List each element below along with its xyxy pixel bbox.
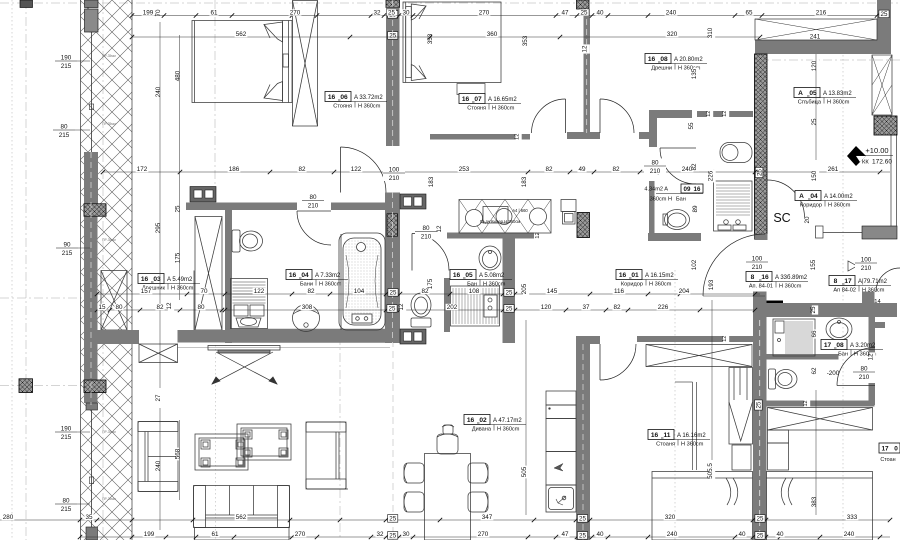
svg-text:40: 40 bbox=[738, 531, 746, 538]
svg-text:204: 204 bbox=[679, 288, 690, 295]
svg-text:A 16.16m2: A 16.16m2 bbox=[677, 433, 706, 439]
svg-text:190: 190 bbox=[61, 55, 72, 62]
svg-text:215: 215 bbox=[61, 63, 72, 70]
svg-text:100: 100 bbox=[389, 167, 400, 174]
svg-text:80: 80 bbox=[62, 498, 70, 505]
svg-text:360: 360 bbox=[487, 31, 498, 38]
svg-text:04: 04 bbox=[810, 193, 818, 200]
svg-text:333: 333 bbox=[847, 514, 858, 521]
svg-text:17: 17 bbox=[824, 342, 832, 349]
svg-text:82: 82 bbox=[307, 288, 315, 295]
svg-text:240: 240 bbox=[155, 86, 162, 97]
svg-text:A 3.20m2: A 3.20m2 bbox=[850, 343, 876, 349]
svg-text:25: 25 bbox=[389, 516, 396, 523]
svg-text:215: 215 bbox=[62, 250, 73, 257]
svg-text:270: 270 bbox=[478, 531, 489, 538]
svg-text:32: 32 bbox=[376, 531, 384, 538]
svg-text:261: 261 bbox=[828, 166, 839, 173]
svg-text:04: 04 bbox=[301, 272, 309, 279]
svg-text:16: 16 bbox=[328, 94, 336, 101]
svg-text:Ап 84-02: Ап 84-02 bbox=[833, 287, 856, 293]
svg-text:353: 353 bbox=[427, 33, 434, 44]
svg-text:A 14.00m2: A 14.00m2 bbox=[824, 194, 853, 200]
svg-text:17: 17 bbox=[881, 446, 889, 453]
svg-text:80: 80 bbox=[197, 304, 205, 311]
svg-text:0: 0 bbox=[894, 446, 898, 453]
svg-text:49: 49 bbox=[578, 166, 586, 173]
svg-text:Коридор: Коридор bbox=[621, 281, 643, 287]
svg-text:25: 25 bbox=[389, 306, 396, 313]
svg-text:06: 06 bbox=[340, 94, 348, 101]
svg-text:240: 240 bbox=[666, 9, 677, 16]
svg-text:210: 210 bbox=[859, 374, 870, 381]
svg-text:07: 07 bbox=[474, 96, 482, 103]
svg-text:210: 210 bbox=[389, 175, 400, 182]
svg-text:353: 353 bbox=[522, 35, 529, 46]
svg-text:104: 104 bbox=[354, 288, 365, 295]
svg-text:15: 15 bbox=[98, 304, 106, 311]
svg-text:Стоан: Стоан bbox=[880, 457, 895, 463]
svg-text:A|79.71m2: A|79.71m2 bbox=[858, 279, 888, 285]
svg-text:568: 568 bbox=[175, 448, 182, 459]
svg-text:Бан: Бан bbox=[676, 197, 686, 203]
svg-text:480: 480 bbox=[175, 70, 182, 81]
svg-text:16: 16 bbox=[619, 272, 627, 279]
svg-text:8: 8 bbox=[834, 278, 838, 285]
svg-text:505: 505 bbox=[521, 466, 528, 477]
svg-text:80: 80 bbox=[115, 304, 123, 311]
svg-text:12: 12 bbox=[166, 302, 173, 310]
svg-text:65: 65 bbox=[745, 9, 753, 16]
svg-text:172: 172 bbox=[137, 166, 148, 173]
svg-text:215: 215 bbox=[61, 506, 72, 513]
svg-text:25: 25 bbox=[757, 516, 764, 523]
svg-text:A 20.80m2: A 20.80m2 bbox=[674, 57, 703, 63]
svg-text:20: 20 bbox=[804, 216, 811, 224]
svg-text:12: 12 bbox=[398, 303, 405, 311]
svg-text:61: 61 bbox=[210, 9, 218, 16]
svg-text:253: 253 bbox=[459, 166, 470, 173]
svg-text:12: 12 bbox=[582, 45, 589, 53]
svg-text:ПР-35мм: ПР-35мм bbox=[102, 54, 115, 58]
svg-text:186: 186 bbox=[229, 166, 240, 173]
svg-text:Съдч Килер Н 360см: Съдч Килер Н 360см bbox=[480, 219, 521, 224]
svg-text:199: 199 bbox=[144, 531, 155, 538]
svg-text:ПР-35мм: ПР-35мм bbox=[102, 122, 115, 126]
svg-text:100: 100 bbox=[752, 256, 763, 263]
svg-text:347: 347 bbox=[482, 514, 493, 521]
svg-text:190: 190 bbox=[61, 426, 72, 433]
svg-text:240: 240 bbox=[844, 531, 855, 538]
svg-text:A 13.83m2: A 13.83m2 bbox=[823, 91, 852, 97]
svg-text:80: 80 bbox=[860, 366, 868, 373]
svg-text:102: 102 bbox=[691, 259, 698, 270]
svg-text:210: 210 bbox=[752, 264, 763, 271]
svg-text:82: 82 bbox=[613, 304, 621, 311]
svg-text:16: 16 bbox=[651, 432, 659, 439]
svg-text:505.5: 505.5 bbox=[707, 463, 714, 479]
svg-text:A 7.33m2: A 7.33m2 bbox=[315, 273, 341, 279]
svg-text:25: 25 bbox=[175, 205, 182, 213]
svg-text:226: 226 bbox=[658, 304, 669, 311]
svg-text:280: 280 bbox=[3, 514, 14, 521]
svg-text:H 360cm: H 360cm bbox=[681, 441, 704, 447]
svg-text:4.34m2 A: 4.34m2 A bbox=[644, 187, 668, 193]
svg-text:H 360cm: H 360cm bbox=[319, 281, 342, 287]
svg-text:16: 16 bbox=[141, 276, 149, 283]
svg-text:A 16.65m2: A 16.65m2 bbox=[488, 97, 517, 103]
svg-text:172.60: 172.60 bbox=[872, 159, 892, 166]
svg-text:H 360cm: H 360cm bbox=[827, 99, 850, 105]
svg-text:25: 25 bbox=[506, 290, 513, 297]
svg-text:40: 40 bbox=[776, 531, 784, 538]
svg-text:202: 202 bbox=[447, 304, 458, 311]
svg-text:Бан: Бан bbox=[467, 281, 477, 287]
svg-text:199: 199 bbox=[143, 9, 154, 16]
svg-text:25: 25 bbox=[388, 9, 396, 16]
svg-text:155: 155 bbox=[810, 259, 817, 270]
svg-text:210: 210 bbox=[308, 202, 319, 209]
svg-text:70: 70 bbox=[200, 288, 208, 295]
svg-text:215: 215 bbox=[61, 434, 72, 441]
svg-text:Стояня: Стояня bbox=[333, 103, 352, 109]
svg-text:215: 215 bbox=[59, 132, 70, 139]
svg-text:H 360cm: H 360cm bbox=[171, 285, 194, 291]
svg-text:145: 145 bbox=[547, 288, 558, 295]
svg-text:66: 66 bbox=[811, 330, 818, 338]
svg-text:122: 122 bbox=[351, 166, 362, 173]
svg-text:270: 270 bbox=[290, 9, 301, 16]
svg-text:16: 16 bbox=[289, 272, 297, 279]
svg-text:H 360cm: H 360cm bbox=[483, 281, 506, 287]
svg-text:16: 16 bbox=[467, 417, 475, 424]
svg-text:А4 | 660: А4 | 660 bbox=[512, 208, 528, 213]
svg-text:02: 02 bbox=[479, 417, 487, 424]
svg-text:61: 61 bbox=[211, 531, 219, 538]
svg-text:A 47.17m2: A 47.17m2 bbox=[493, 418, 522, 424]
svg-text:11: 11 bbox=[664, 432, 671, 439]
svg-text:25: 25 bbox=[757, 533, 764, 540]
svg-text:Ап. 84-01: Ап. 84-01 bbox=[749, 283, 773, 289]
svg-text:216: 216 bbox=[816, 9, 827, 16]
svg-text:150: 150 bbox=[811, 170, 818, 181]
svg-text:62: 62 bbox=[811, 367, 818, 375]
svg-text:12: 12 bbox=[436, 225, 443, 233]
svg-text:210: 210 bbox=[861, 265, 872, 272]
svg-text:320: 320 bbox=[665, 514, 676, 521]
svg-text:70: 70 bbox=[155, 9, 162, 17]
svg-text:308: 308 bbox=[302, 304, 313, 311]
svg-text:210: 210 bbox=[421, 233, 432, 240]
svg-text:25: 25 bbox=[579, 516, 586, 523]
svg-text:ПР-35мм: ПР-35мм bbox=[102, 430, 115, 434]
svg-text:183: 183 bbox=[428, 176, 435, 187]
svg-text:Бани: Бани bbox=[300, 281, 313, 287]
svg-text:241: 241 bbox=[810, 34, 821, 41]
svg-text:320: 320 bbox=[667, 31, 678, 38]
svg-text:120: 120 bbox=[811, 60, 818, 71]
svg-text:30: 30 bbox=[402, 9, 410, 16]
svg-text:Спъбица: Спъбица bbox=[798, 99, 822, 105]
svg-text:A 5.49m2: A 5.49m2 bbox=[167, 277, 193, 283]
svg-text:ПР-35мм: ПР-35мм bbox=[102, 238, 115, 242]
svg-text:25: 25 bbox=[580, 9, 588, 16]
svg-text:Стояня: Стояня bbox=[467, 105, 486, 111]
svg-text:-200: -200 bbox=[827, 370, 840, 377]
svg-text:562: 562 bbox=[236, 31, 247, 38]
svg-text:27: 27 bbox=[155, 394, 162, 402]
svg-text:383: 383 bbox=[811, 496, 818, 507]
svg-text:175: 175 bbox=[175, 252, 182, 263]
svg-text:01: 01 bbox=[631, 272, 639, 279]
svg-text:80: 80 bbox=[309, 194, 317, 201]
svg-text:47: 47 bbox=[561, 531, 569, 538]
svg-text:12: 12 bbox=[515, 134, 521, 140]
svg-text:80: 80 bbox=[651, 160, 659, 167]
svg-text:82: 82 bbox=[545, 166, 553, 173]
svg-text:H 360cm: H 360cm bbox=[358, 103, 381, 109]
svg-text:05: 05 bbox=[465, 272, 473, 279]
svg-text:183: 183 bbox=[521, 176, 528, 187]
svg-text:H 360cm: H 360cm bbox=[649, 281, 672, 287]
svg-text:82: 82 bbox=[612, 166, 620, 173]
svg-text:25: 25 bbox=[881, 11, 888, 18]
svg-text:12: 12 bbox=[868, 353, 875, 361]
svg-text:09: 09 bbox=[684, 186, 691, 193]
svg-text:25: 25 bbox=[756, 401, 763, 408]
svg-text:08: 08 bbox=[836, 342, 844, 349]
svg-text:12: 12 bbox=[722, 336, 728, 342]
svg-text:193: 193 bbox=[708, 279, 715, 290]
svg-text:562: 562 bbox=[236, 514, 247, 521]
svg-text:A: A bbox=[798, 90, 803, 97]
svg-text:A 5.08m2: A 5.08m2 bbox=[479, 273, 505, 279]
svg-text:16: 16 bbox=[648, 56, 656, 63]
svg-text:H 360cm: H 360cm bbox=[828, 202, 851, 208]
svg-text:360cm H: 360cm H bbox=[650, 197, 672, 203]
svg-text:55: 55 bbox=[688, 122, 695, 130]
svg-text:32: 32 bbox=[373, 9, 381, 16]
svg-text:175: 175 bbox=[427, 278, 434, 289]
svg-text:122: 122 bbox=[254, 288, 265, 295]
svg-text:H 360cm: H 360cm bbox=[492, 105, 515, 111]
svg-text:240: 240 bbox=[155, 460, 162, 471]
svg-text:100: 100 bbox=[861, 257, 872, 264]
svg-text:25: 25 bbox=[506, 306, 513, 313]
svg-text:40: 40 bbox=[596, 531, 604, 538]
svg-text:Бан: Бан bbox=[838, 351, 848, 357]
svg-text:25: 25 bbox=[811, 118, 818, 126]
svg-text:240: 240 bbox=[667, 531, 678, 538]
svg-text:82: 82 bbox=[691, 163, 698, 171]
svg-text:30: 30 bbox=[402, 531, 410, 538]
svg-text:295: 295 bbox=[155, 222, 162, 233]
svg-text:270: 270 bbox=[295, 531, 306, 538]
svg-text:17: 17 bbox=[844, 278, 852, 285]
svg-text:270: 270 bbox=[479, 9, 490, 16]
svg-text:116: 116 bbox=[614, 288, 625, 295]
svg-text:310: 310 bbox=[707, 27, 714, 38]
svg-text:H 360cm: H 360cm bbox=[497, 426, 520, 432]
svg-text:14: 14 bbox=[874, 299, 881, 305]
svg-text:47: 47 bbox=[561, 9, 569, 16]
svg-text:90: 90 bbox=[63, 242, 71, 249]
svg-text:A 16.15m2: A 16.15m2 bbox=[645, 273, 674, 279]
svg-text:A: A bbox=[799, 193, 804, 200]
svg-text:H 360cm: H 360cm bbox=[862, 287, 885, 293]
svg-text:210: 210 bbox=[650, 168, 661, 175]
svg-text:25: 25 bbox=[579, 533, 586, 540]
svg-text:82: 82 bbox=[298, 166, 306, 173]
svg-text:Стоаня: Стоаня bbox=[656, 441, 675, 447]
svg-text:КК: КК bbox=[862, 160, 869, 166]
svg-text:16: 16 bbox=[694, 186, 701, 193]
svg-text:12: 12 bbox=[706, 111, 712, 117]
svg-text:25: 25 bbox=[389, 533, 396, 540]
svg-text:135: 135 bbox=[691, 68, 698, 79]
svg-text:108: 108 bbox=[469, 288, 480, 295]
svg-text:A 33.72m2: A 33.72m2 bbox=[354, 95, 383, 101]
svg-text:25: 25 bbox=[810, 306, 817, 314]
svg-text:16: 16 bbox=[761, 274, 769, 281]
svg-text:8: 8 bbox=[751, 274, 755, 281]
svg-text:205: 205 bbox=[521, 283, 528, 294]
svg-text:Дрешни: Дрешни bbox=[651, 65, 672, 71]
svg-text:157: 157 bbox=[141, 288, 152, 295]
svg-text:120: 120 bbox=[541, 304, 552, 311]
svg-text:25: 25 bbox=[390, 290, 397, 297]
svg-text:+10.00: +10.00 bbox=[865, 146, 888, 155]
svg-text:ПР-35мм: ПР-35мм bbox=[102, 497, 115, 501]
svg-text:SC: SC bbox=[773, 211, 790, 225]
svg-text:16: 16 bbox=[462, 96, 470, 103]
svg-text:08: 08 bbox=[660, 56, 668, 63]
svg-text:80: 80 bbox=[422, 225, 430, 232]
svg-text:H 360cm: H 360cm bbox=[779, 283, 802, 289]
svg-text:80: 80 bbox=[60, 124, 68, 131]
svg-text:Дивана: Дивана bbox=[472, 426, 492, 432]
svg-text:40: 40 bbox=[596, 9, 604, 16]
svg-text:12: 12 bbox=[803, 401, 809, 407]
svg-text:16: 16 bbox=[453, 272, 461, 279]
svg-text:37: 37 bbox=[582, 304, 590, 311]
svg-text:89: 89 bbox=[692, 205, 699, 213]
svg-text:A 33б.89m2: A 33б.89m2 bbox=[775, 275, 808, 281]
svg-text:82: 82 bbox=[156, 304, 164, 311]
svg-text:35: 35 bbox=[85, 514, 93, 521]
svg-text:226: 226 bbox=[708, 170, 715, 181]
svg-text:Коридор: Коридор bbox=[800, 202, 822, 208]
svg-text:12: 12 bbox=[722, 111, 728, 117]
